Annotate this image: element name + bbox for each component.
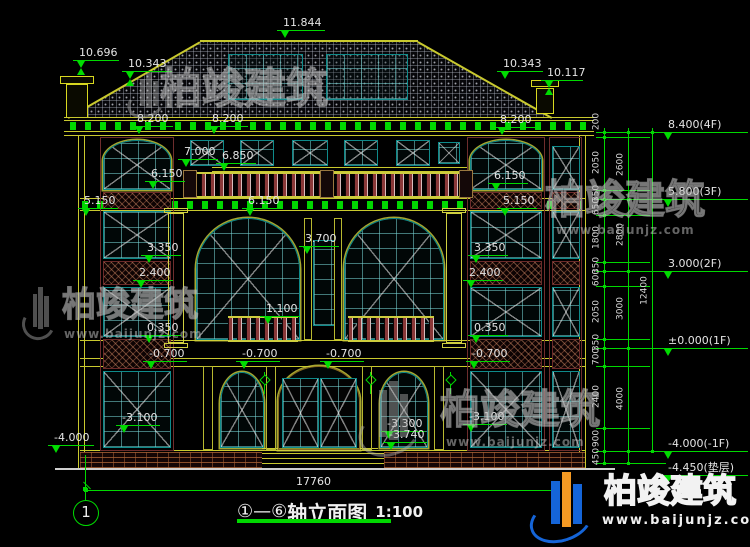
column-capital [442,208,466,213]
elevation-mark-label: -0.700 [242,348,277,359]
triangle-down-icon [135,127,143,134]
triangle-down-icon [501,209,509,216]
triangle-down-icon [147,362,155,369]
level-mark-label: 8.400(4F) [668,119,721,130]
watermark-brand-text: 柏竣建筑 [545,180,705,220]
chain-node [603,338,606,341]
elevation-mark-label: 6.150 [151,168,183,179]
axis-bubble: 1 [73,500,99,526]
facade-line [212,167,468,168]
elevation-mark-label: 8.200 [500,114,532,125]
attic-window [326,54,408,100]
facade-line [64,135,594,136]
chain-dim-label: 700 [593,337,602,377]
chain-tick-line [596,348,666,349]
balustrade-pedestal [183,170,197,198]
chain-node [603,365,606,368]
elevation-mark-label: 5.150 [84,195,116,206]
elevation-mark-label: -0.700 [149,348,184,359]
window [438,142,460,164]
triangle-down-icon [664,133,672,140]
level-mark-line [662,451,748,452]
triangle-down-icon [120,426,128,433]
axis-leader-node [83,487,87,491]
watermark-brand-text: 柏竣建筑 [604,474,736,507]
elevation-mark-label: 7.000 [184,146,216,157]
watermark-url-text: www.baijunjz.com [446,436,585,448]
chain-node [603,450,606,453]
watermark-logo [362,376,418,456]
chain-node [627,131,630,134]
elevation-mark-label: 2.400 [139,267,171,278]
triangle-down-icon [303,247,311,254]
triangle-down-icon [246,209,254,216]
watermark-brand-text: 柏竣建筑 [160,68,328,110]
triangle-down-icon [77,61,85,68]
triangle-down-icon [82,209,90,216]
watermark-url-text: www.baijunjz.com [602,514,750,527]
chain-tick-line [596,271,666,272]
chain-node [603,427,606,430]
watermark-logo [24,284,54,340]
triangle-down-icon [498,128,506,135]
facade-line [246,463,394,464]
chain-node [627,347,630,350]
elevation-mark-label: 0.350 [474,322,506,333]
column-capital [164,208,188,213]
cad-canvas: ①—⑥轴立面图1:100 1 11.84410.69610.34310.3431… [0,0,750,547]
triangle-down-icon [545,81,553,88]
chain-node [603,270,606,273]
wall-lamp-hook [264,372,265,376]
overall-dim-label: 17760 [296,476,331,487]
triangle-up-icon [77,68,85,75]
elevation-mark-label: 10.117 [547,67,586,78]
elevation-mark-label: 3.350 [147,242,179,253]
level-mark-line [662,348,748,349]
elevation-mark-label: 3.350 [474,242,506,253]
elevation-mark-label: 10.343 [503,58,542,69]
chain-dim-label: 450 [593,437,602,477]
axis-leader-line [85,455,86,501]
watermark-brand-text: 柏竣建筑 [440,390,600,430]
triangle-down-icon [220,164,228,171]
logo-bar [389,381,398,440]
column-base [442,343,466,348]
chimney-cap [60,76,94,84]
level-mark-label: 3.000(2F) [668,258,721,269]
chain-node [603,285,606,288]
elevation-mark-label: 2.400 [469,267,501,278]
title-underline [237,519,391,523]
triangle-down-icon [145,256,153,263]
logo-bar [551,481,559,524]
logo-bar [573,484,581,524]
elevation-mark-label: 6.850 [222,150,254,161]
chain-tick-line [596,132,666,133]
triangle-down-icon [324,362,332,369]
triangle-down-icon [492,184,500,191]
chain-tick-line [596,451,666,452]
chain-dim-label: 3000 [617,289,626,329]
chimney [66,84,88,118]
logo-bar [44,296,48,326]
level-mark-label: -4.000(-1F) [668,438,729,449]
chain-node [603,462,606,465]
balustrade-pedestal [320,170,334,198]
triangle-down-icon [664,452,672,459]
door-leaf [282,378,319,448]
wall-lamp-icon [445,374,456,385]
triangle-down-icon [472,336,480,343]
logo-bar [33,294,37,326]
window [552,287,580,337]
triangle-down-icon [472,256,480,263]
window [292,140,328,166]
chain-node [651,131,654,134]
triangle-down-icon [52,446,60,453]
triangle-down-icon [264,317,272,324]
logo-bar [400,394,408,437]
elevation-mark-label: 8.200 [212,113,244,124]
logo-bar [38,287,43,328]
balustrade-pedestal [459,170,473,198]
triangle-down-icon [210,127,218,134]
elevation-mark-label: 6.150 [494,170,526,181]
balustrade [348,316,434,342]
arched-window [103,140,171,190]
triangle-down-icon [664,349,672,356]
chain-node [627,450,630,453]
ground-line [55,468,615,470]
column [446,213,462,343]
window [313,240,335,326]
window [396,140,430,166]
triangle-down-icon [182,160,190,167]
chain-dim-label: 12400 [641,271,650,311]
chain-node [651,450,654,453]
roof-ridge-line [200,40,418,42]
facade-line [250,458,390,459]
elevation-mark-label: 6.150 [248,195,280,206]
watermark-url-text: www.baijunjz.com [64,328,203,340]
balustrade [228,316,298,342]
elevation-mark-label: -3.100 [122,412,157,423]
elevation-mark-label: -0.700 [326,348,361,359]
level-mark-label: ±0.000(1F) [668,335,731,346]
elevation-mark-label: 3.700 [305,233,337,244]
watermark-logo [130,70,164,118]
triangle-up-icon [545,88,553,95]
logo-bar [379,390,387,436]
chain-node [603,347,606,350]
triangle-down-icon [240,362,248,369]
chain-dim-label: 200 [593,102,602,142]
window [344,140,378,166]
logo-bar [146,73,151,109]
logo-bar [153,81,158,107]
level-mark-line [662,132,748,133]
elevation-mark-label: 11.844 [283,17,322,28]
triangle-down-icon [149,182,157,189]
facade-line [64,131,594,132]
triangle-down-icon [281,31,289,38]
watermark-brand-text: 柏竣建筑 [62,288,198,322]
triangle-down-icon [501,72,509,79]
elevation-mark-label: 1.100 [266,303,298,314]
chain-node [603,261,606,264]
chain-tick-line [596,463,666,464]
wall-lamp-hook [450,372,451,376]
brick-base [80,452,262,468]
lattice-panel [552,339,580,369]
level-mark-line [662,271,748,272]
logo-bar [140,79,145,107]
chain-node [627,462,630,465]
watermark-url-text: www.baijunjz.com [556,224,695,236]
overall-dim-line [86,490,554,491]
scale-label: 1:100 [375,503,423,521]
wall-lamp-stem [264,385,265,394]
elevation-mark-label: -0.700 [472,348,507,359]
chain-node [627,270,630,273]
watermark-logo [534,468,592,542]
triangle-down-icon [664,272,672,279]
chain-dim-label: 4000 [617,379,626,419]
logo-bar [562,472,571,527]
lattice-panel [552,261,580,285]
door-leaf [320,378,357,448]
elevation-mark-label: 10.696 [79,47,118,58]
chain-node [603,136,606,139]
elevation-mark-label: 5.150 [503,195,535,206]
pilaster [203,366,213,450]
triangle-down-icon [467,281,475,288]
window [103,371,171,448]
triangle-down-icon [470,362,478,369]
elevation-mark-label: -4.000 [54,432,89,443]
arched-window [220,372,264,448]
chain-node [603,131,606,134]
